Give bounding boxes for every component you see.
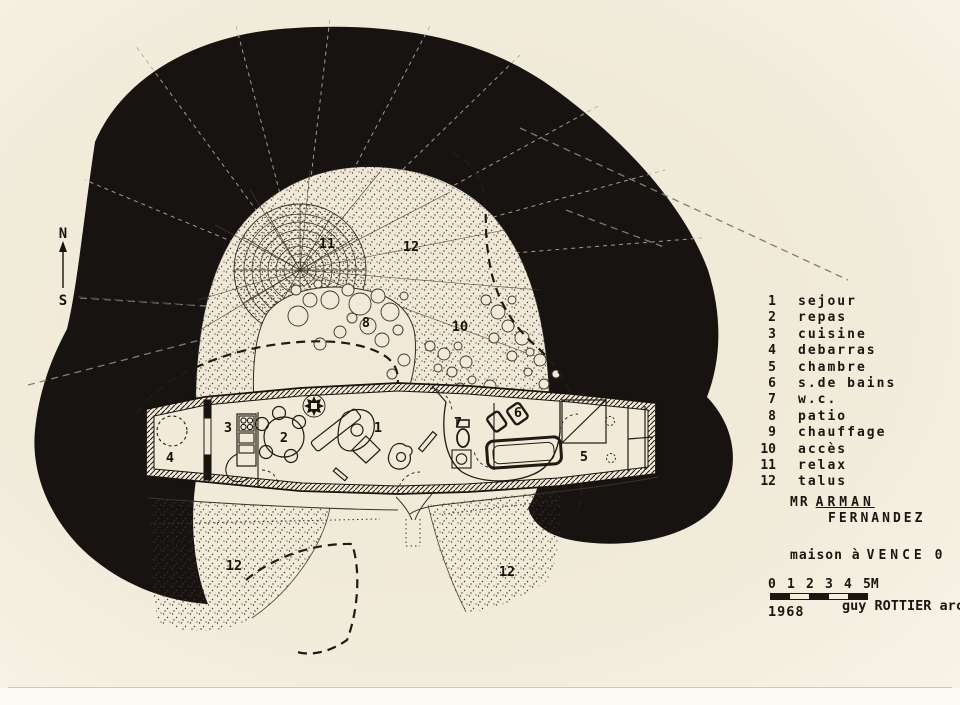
label-acces: 10: [452, 319, 468, 335]
scale-tick: 0: [768, 577, 787, 592]
scale-seg: [790, 594, 809, 599]
label-debarras: 4: [166, 450, 174, 466]
compass-south-label: S: [59, 293, 67, 309]
client-line: MRARMAN: [790, 495, 960, 510]
title-block: MRARMAN FERNANDEZ maison àVENCE 0: [790, 495, 960, 563]
label-talus-right: 12: [499, 564, 515, 580]
legend-num: 6: [748, 376, 776, 392]
label-patio: 8: [362, 315, 370, 331]
label-wc: 7: [454, 415, 462, 431]
project-city: VENCE: [867, 548, 926, 563]
legend-row: 12talus: [748, 474, 898, 490]
label-talus-left: 12: [226, 558, 242, 574]
project-line: maison àVENCE 0: [790, 548, 960, 563]
legend-label: talus: [798, 474, 847, 490]
legend-row: 7w.c.: [748, 392, 898, 408]
legend-row: 3cuisine: [748, 327, 898, 343]
scale-tick: 2: [806, 577, 825, 592]
project-suffix: 0: [935, 548, 944, 563]
legend-label: relax: [798, 458, 847, 474]
label-chambre: 5: [580, 449, 588, 465]
scale-numbers: 0 1 2 3 4 5M: [768, 577, 888, 592]
label-talus-top: 12: [403, 239, 419, 255]
drawing-year: 1968: [768, 604, 805, 620]
compass-north-label: N: [59, 226, 67, 242]
legend-row: 2repas: [748, 310, 898, 326]
house-inner-wall: [154, 391, 648, 486]
legend-row: 5chambre: [748, 360, 898, 376]
legend-num: 5: [748, 360, 776, 376]
legend-label: sejour: [798, 294, 857, 310]
architect-credit: guy ROTTIER arch: [842, 598, 960, 614]
legend-num: 8: [748, 409, 776, 425]
photo-bottom-margin: [0, 688, 960, 705]
scale-tick: 4: [844, 577, 863, 592]
scale-seg: [771, 594, 790, 599]
label-bains: 6: [514, 405, 522, 421]
client-name: ARMAN: [816, 495, 875, 510]
legend-row: 10accès: [748, 442, 898, 458]
legend-label: patio: [798, 409, 847, 425]
legend-row: 4debarras: [748, 343, 898, 359]
scale-tick: 5M: [863, 577, 882, 592]
client-surname: FERNANDEZ: [828, 511, 960, 526]
legend-num: 3: [748, 327, 776, 343]
legend: 1sejour 2repas 3cuisine 4debarras 5chamb…: [748, 294, 898, 491]
legend-num: 4: [748, 343, 776, 359]
label-cuisine: 3: [224, 420, 232, 436]
label-repas: 2: [280, 430, 288, 446]
scale-bar: 0 1 2 3 4 5M: [768, 577, 908, 600]
legend-num: 9: [748, 425, 776, 441]
scale-seg: [809, 594, 828, 599]
client-prefix: MR: [790, 495, 810, 510]
scale-tick: 1: [787, 577, 806, 592]
project-prefix: maison à: [790, 548, 861, 563]
legend-label: accès: [798, 442, 847, 458]
legend-label: cuisine: [798, 327, 867, 343]
legend-row: 1sejour: [748, 294, 898, 310]
legend-label: w.c.: [798, 392, 837, 408]
legend-row: 6s.de bains: [748, 376, 898, 392]
scale-tick: 3: [825, 577, 844, 592]
legend-num: 1: [748, 294, 776, 310]
legend-num: 10: [748, 442, 776, 458]
legend-row: 11relax: [748, 458, 898, 474]
legend-label: chambre: [798, 360, 867, 376]
legend-num: 7: [748, 392, 776, 408]
legend-num: 2: [748, 310, 776, 326]
label-sejour: 1: [374, 420, 382, 436]
legend-row: 9chauffage: [748, 425, 898, 441]
legend-label: s.de bains: [798, 376, 896, 392]
legend-num: 12: [748, 474, 776, 490]
label-relax: 11: [319, 236, 335, 252]
legend-label: repas: [798, 310, 847, 326]
legend-row: 8patio: [748, 409, 898, 425]
legend-num: 11: [748, 458, 776, 474]
legend-label: debarras: [798, 343, 877, 359]
legend-label: chauffage: [798, 425, 886, 441]
